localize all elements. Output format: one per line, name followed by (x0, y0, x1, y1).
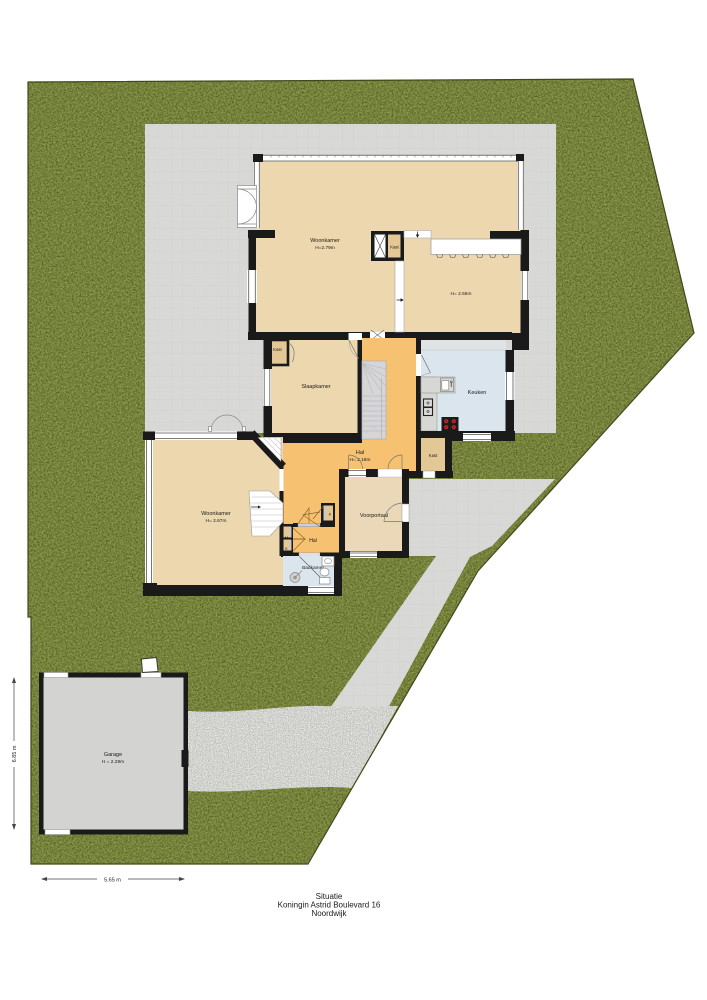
svg-text:H=2.79m: H=2.79m (315, 245, 335, 251)
svg-text:K: K (329, 512, 332, 517)
svg-text:Woonkamer: Woonkamer (310, 238, 340, 244)
svg-text:Woonkamer: Woonkamer (201, 511, 231, 517)
svg-text:Kast: Kast (429, 453, 438, 458)
svg-text:H = 2.29m: H = 2.29m (102, 759, 124, 765)
svg-text:K: K (285, 546, 288, 551)
svg-text:Slaapkamer: Slaapkamer (301, 384, 331, 390)
svg-text:Hal: Hal (309, 538, 317, 544)
svg-text:M: M (285, 535, 288, 540)
svg-text:Keuken: Keuken (468, 390, 487, 396)
svg-text:Voorportaal: Voorportaal (360, 513, 388, 519)
svg-text:H= 2.67m: H= 2.67m (206, 518, 227, 524)
svg-text:Hal: Hal (356, 450, 364, 456)
svg-text:H= 2.18m: H= 2.18m (350, 457, 371, 463)
svg-text:Kast: Kast (273, 347, 282, 352)
svg-text:Noordwijk: Noordwijk (311, 909, 347, 918)
svg-text:Kast: Kast (390, 245, 399, 250)
svg-text:H= 2.55m: H= 2.55m (451, 291, 472, 297)
svg-text:Garage: Garage (104, 752, 122, 758)
svg-text:5.65 m: 5.65 m (104, 878, 121, 884)
svg-text:6.85 m: 6.85 m (12, 745, 18, 762)
